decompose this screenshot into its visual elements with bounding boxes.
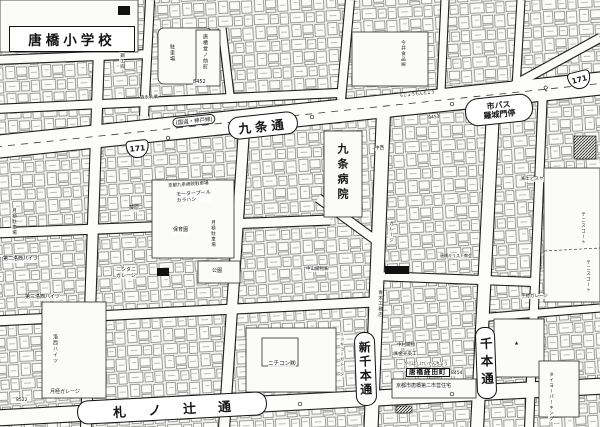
motorpool-karahashi: モータープール カラハシ bbox=[176, 191, 211, 205]
tsukigime-parking-center: 月極駐車場 bbox=[210, 220, 215, 248]
tennis-court-1: テニスコート bbox=[580, 212, 585, 245]
parking-lot-label: 駐車場 bbox=[169, 44, 174, 62]
karahashi-dononomae-cho: 唐橋堂ノ前町 bbox=[202, 34, 207, 70]
nishitani-garage: ニシタニ ガレージ bbox=[116, 268, 136, 279]
street-label-senbon-dori: 千本通 bbox=[475, 327, 498, 400]
municipal-housing: 京都市唐橋第二市営住宅 bbox=[396, 384, 451, 390]
tsukigime-parking-left: 月極駐車場 bbox=[11, 208, 16, 236]
nursery: 保育園 bbox=[173, 228, 188, 234]
num-8452: 8452 bbox=[193, 80, 206, 86]
rikkyo-garage: リッキョーガレージ bbox=[340, 332, 344, 377]
karahashi-elementary-school-label: 唐橋小学校 bbox=[9, 26, 135, 52]
num-8522: 8522 bbox=[16, 398, 27, 403]
aoki-komuten: 青木工務店 bbox=[377, 290, 382, 318]
ebisuya: ㈱エビスヤ bbox=[521, 177, 544, 182]
taiyo-parking: タイヨーパーキング bbox=[548, 372, 553, 422]
uno-garage: 宇野ガレージ bbox=[521, 294, 548, 299]
daisan-rakusai-heights: 第三洛西ハイツ bbox=[25, 295, 60, 301]
imai-foods: 今井食品㈱ bbox=[400, 40, 405, 68]
num-8453: 8453 bbox=[428, 115, 440, 121]
kujo-hospital-label: 九条病院 bbox=[334, 143, 350, 203]
nichicon: ニチコン㈱ bbox=[268, 361, 296, 367]
kujo-hospital-parking: 京都九条病院駐車場 bbox=[168, 181, 209, 189]
nakamura-orimono: 中村織物 bbox=[397, 343, 415, 348]
street-label-shin-senbon-dori: 新千本通 bbox=[354, 332, 378, 407]
bus-stop-symbol-right: ♀ bbox=[543, 85, 549, 93]
rajomon-furigana: らじょうもんちょう bbox=[399, 90, 435, 98]
kanemitsu-senko: ㈱金光染工 bbox=[394, 352, 417, 357]
nakanishi: 中西 bbox=[375, 146, 384, 151]
scanned-city-map: 唐橋堂ノ前町8452駐車場笹井鋼工㈲森永乳業今井食品㈱藤原月極駐車場月極駐車場京… bbox=[0, 0, 600, 427]
rakusai-heights: 洛西ハイツ bbox=[52, 334, 57, 364]
tennis-court-2: テニスコート bbox=[585, 260, 590, 293]
tsukigime-garage: 月極ガレージ bbox=[50, 390, 80, 396]
num-8454: 8454 bbox=[451, 371, 462, 376]
triangle-mark: ▲ bbox=[515, 341, 518, 345]
karahashi-church: 唐橋キリスト教会 bbox=[440, 254, 472, 258]
fujiwara: 藤原 bbox=[129, 206, 139, 212]
keiden-furigana: からはしけいでんちょう bbox=[404, 362, 448, 366]
morinaga: 森永乳業 bbox=[140, 95, 158, 101]
karahashi-keiden-cho: 唐橋経田町 bbox=[406, 368, 450, 377]
park: 公園 bbox=[212, 269, 222, 275]
garage-vertical: ガレージ bbox=[388, 221, 393, 243]
daini-rakusai-heights: 第二洛西ハイツ bbox=[3, 257, 38, 263]
map-labels-layer: 唐橋堂ノ前町8452駐車場笹井鋼工㈲森永乳業今井食品㈱藤原月極駐車場月極駐車場京… bbox=[0, 0, 600, 427]
nakayama-orimono: 中山織物㈱ bbox=[306, 267, 329, 272]
